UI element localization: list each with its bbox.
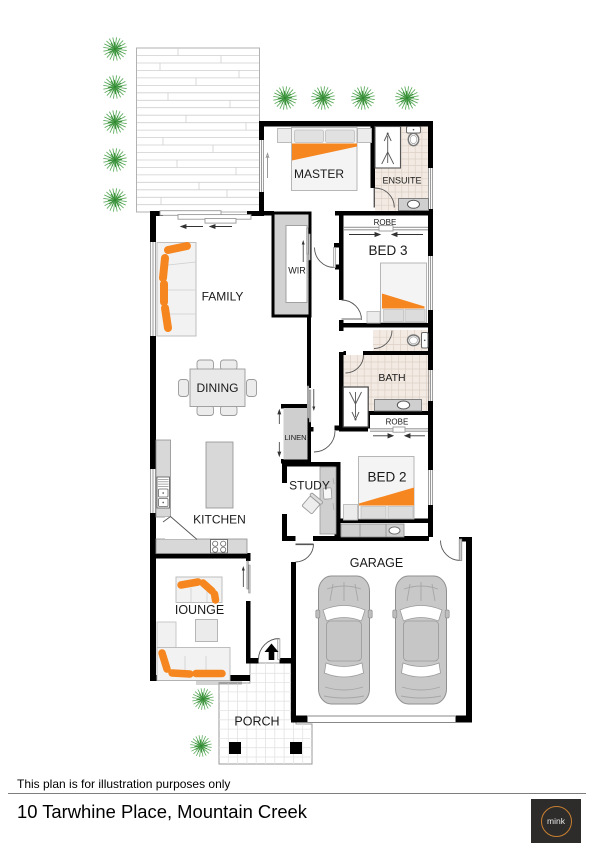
svg-text:BED 3: BED 3 (368, 243, 407, 258)
svg-text:WIR: WIR (288, 266, 306, 276)
svg-text:STUDY: STUDY (289, 479, 330, 493)
svg-text:IOUNGE: IOUNGE (175, 603, 224, 617)
svg-text:PORCH: PORCH (234, 715, 279, 729)
svg-text:MASTER: MASTER (294, 167, 344, 181)
svg-text:GARAGE: GARAGE (350, 556, 404, 570)
svg-text:DINING: DINING (197, 381, 239, 395)
svg-text:KITCHEN: KITCHEN (193, 513, 246, 527)
svg-text:LINEN: LINEN (284, 433, 306, 442)
svg-text:FAMILY: FAMILY (202, 290, 244, 304)
svg-text:ENSUITE: ENSUITE (382, 176, 421, 186)
svg-text:ROBE: ROBE (374, 218, 397, 227)
svg-text:BATH: BATH (378, 372, 405, 384)
svg-text:BED 2: BED 2 (367, 470, 406, 485)
svg-text:ROBE: ROBE (386, 418, 409, 427)
